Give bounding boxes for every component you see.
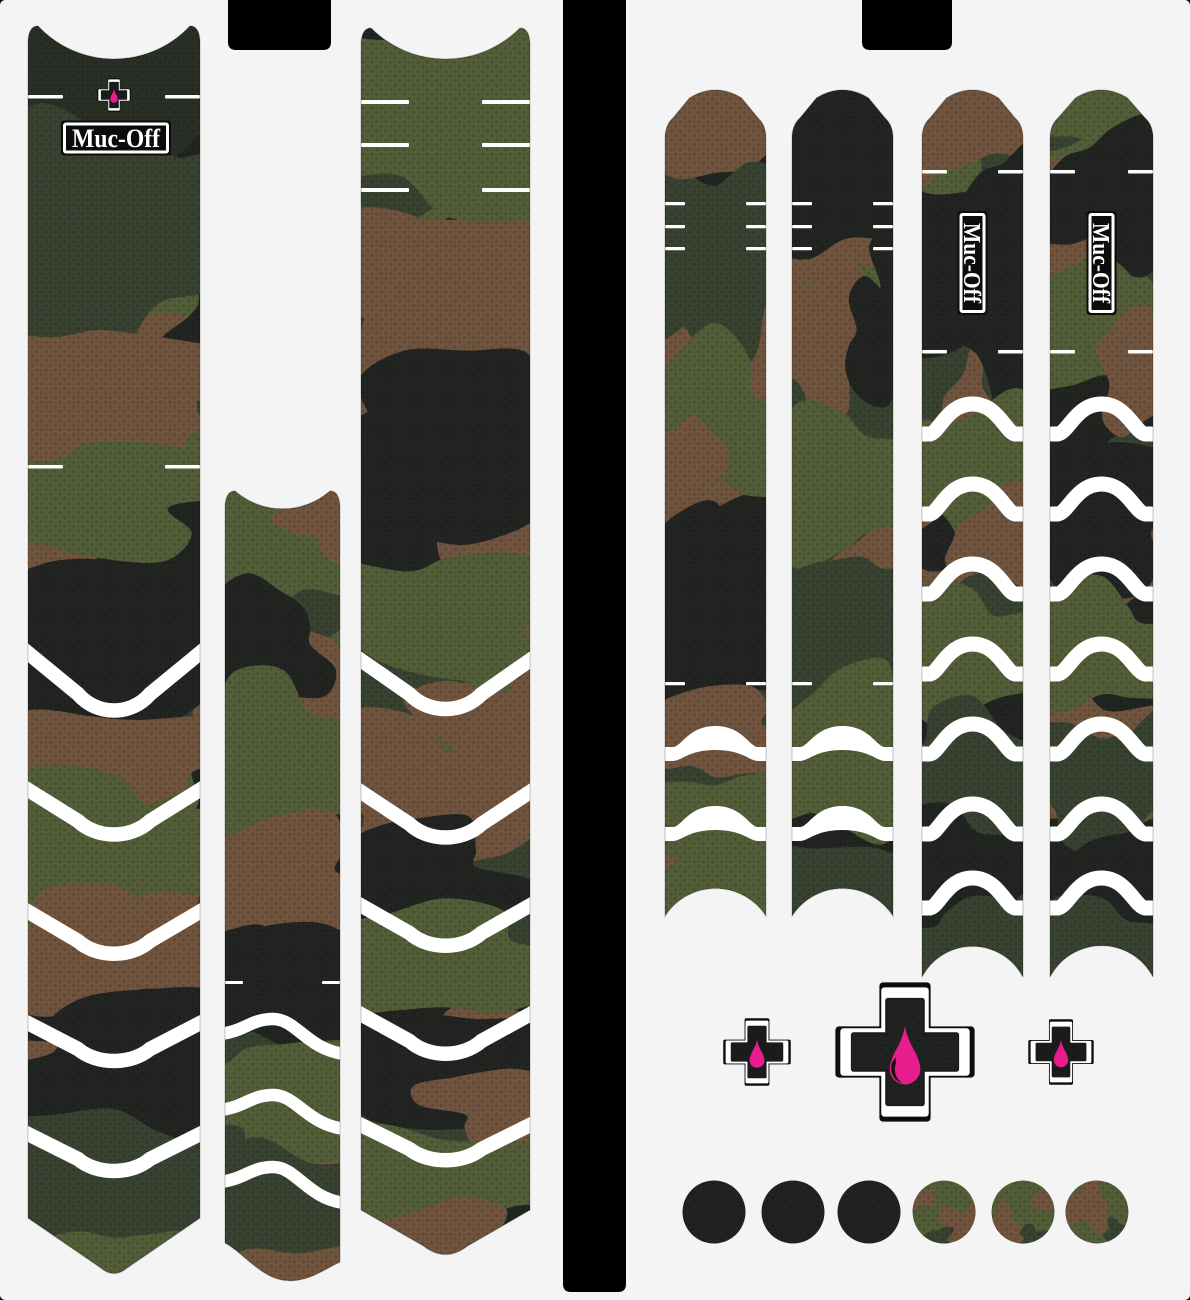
svg-text:Muc-Off: Muc-Off [72,124,160,153]
svg-text:Muc-Off: Muc-Off [1087,223,1113,304]
svg-text:Muc-Off: Muc-Off [958,223,984,304]
